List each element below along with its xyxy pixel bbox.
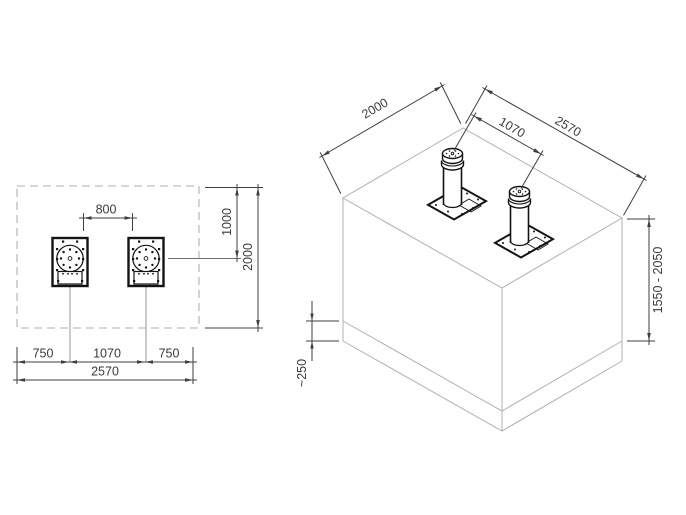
- dim-2570-iso-arrow-left: [485, 89, 493, 95]
- plan-view: 800 1000 2000 750: [13, 184, 263, 384]
- dim-height-arrow-bottom: [647, 333, 651, 341]
- dim-label-bollard-spacing-iso: 1070: [496, 115, 527, 141]
- dim-800-arrow-left: [84, 216, 92, 220]
- dim-1000-arrow-bottom: [235, 251, 239, 259]
- block-top-face: [343, 128, 622, 288]
- dim-label-pit-depth-iso: 2000: [359, 95, 390, 121]
- bollard-cylinder-fill: [444, 165, 462, 205]
- dim-1070-iso-arrow-right: [533, 148, 541, 154]
- drawing-canvas: 800 1000 2000 750: [0, 0, 686, 515]
- bollard-flange-plan-2: [129, 238, 164, 286]
- dim-base-arrow-top: [310, 314, 313, 322]
- dim-2570-plan: [13, 378, 197, 382]
- foundation-block: [343, 128, 622, 431]
- dim-2000-iso-arrow-left: [322, 150, 330, 156]
- dim-750r-arrow-right: [185, 360, 193, 364]
- dim-label-clear-spacing: 800: [96, 203, 117, 217]
- dim-label-pit-depth-plan: 2000: [241, 243, 255, 271]
- junction-box-2: [134, 272, 158, 285]
- dim-label-edge-to-axis: 1000: [220, 208, 234, 236]
- iso-view: 2000 2570 1070 1550 - 2050: [295, 82, 665, 431]
- dim-label-height-range: 1550 - 2050: [651, 247, 665, 314]
- dim-800-arrow-right: [125, 216, 133, 220]
- bollard-cap-top: [443, 149, 463, 159]
- junction-box-1: [58, 272, 82, 285]
- dim-height-arrow-top: [647, 219, 651, 227]
- dim-2000-arrow-top: [256, 188, 260, 196]
- base-layer-top-line: [343, 321, 622, 411]
- dim-2000-arrow-bottom: [256, 320, 260, 328]
- dim-2570-iso-arrow-right: [636, 174, 644, 180]
- dim-base-layer: [306, 301, 339, 361]
- dim-1070-iso-arrow-left: [474, 116, 482, 122]
- dim-750l-arrow-right: [61, 360, 69, 364]
- dim-label-left-margin: 750: [33, 347, 54, 361]
- block-bottom-edge: [343, 341, 622, 431]
- dim-2570-arrow-left: [17, 378, 25, 382]
- dim-1070-arrow-right: [137, 360, 145, 364]
- dim-label-center-spacing: 1070: [93, 347, 121, 361]
- dim-base-arrow-bottom: [310, 341, 313, 349]
- dim-750l-arrow-left: [17, 360, 25, 364]
- dim-label-base-layer: ~250: [295, 359, 309, 387]
- dim-label-right-margin: 750: [159, 347, 180, 361]
- technical-drawing-page: 800 1000 2000 750: [0, 0, 686, 515]
- dim-2570-arrow-right: [185, 378, 193, 382]
- dim-2000-iso-arrow-right: [434, 86, 442, 92]
- dim-1000-arrow-top: [235, 188, 239, 196]
- dim-label-pit-width-plan: 2570: [91, 365, 119, 379]
- bollard-flange-plan-1: [53, 238, 88, 286]
